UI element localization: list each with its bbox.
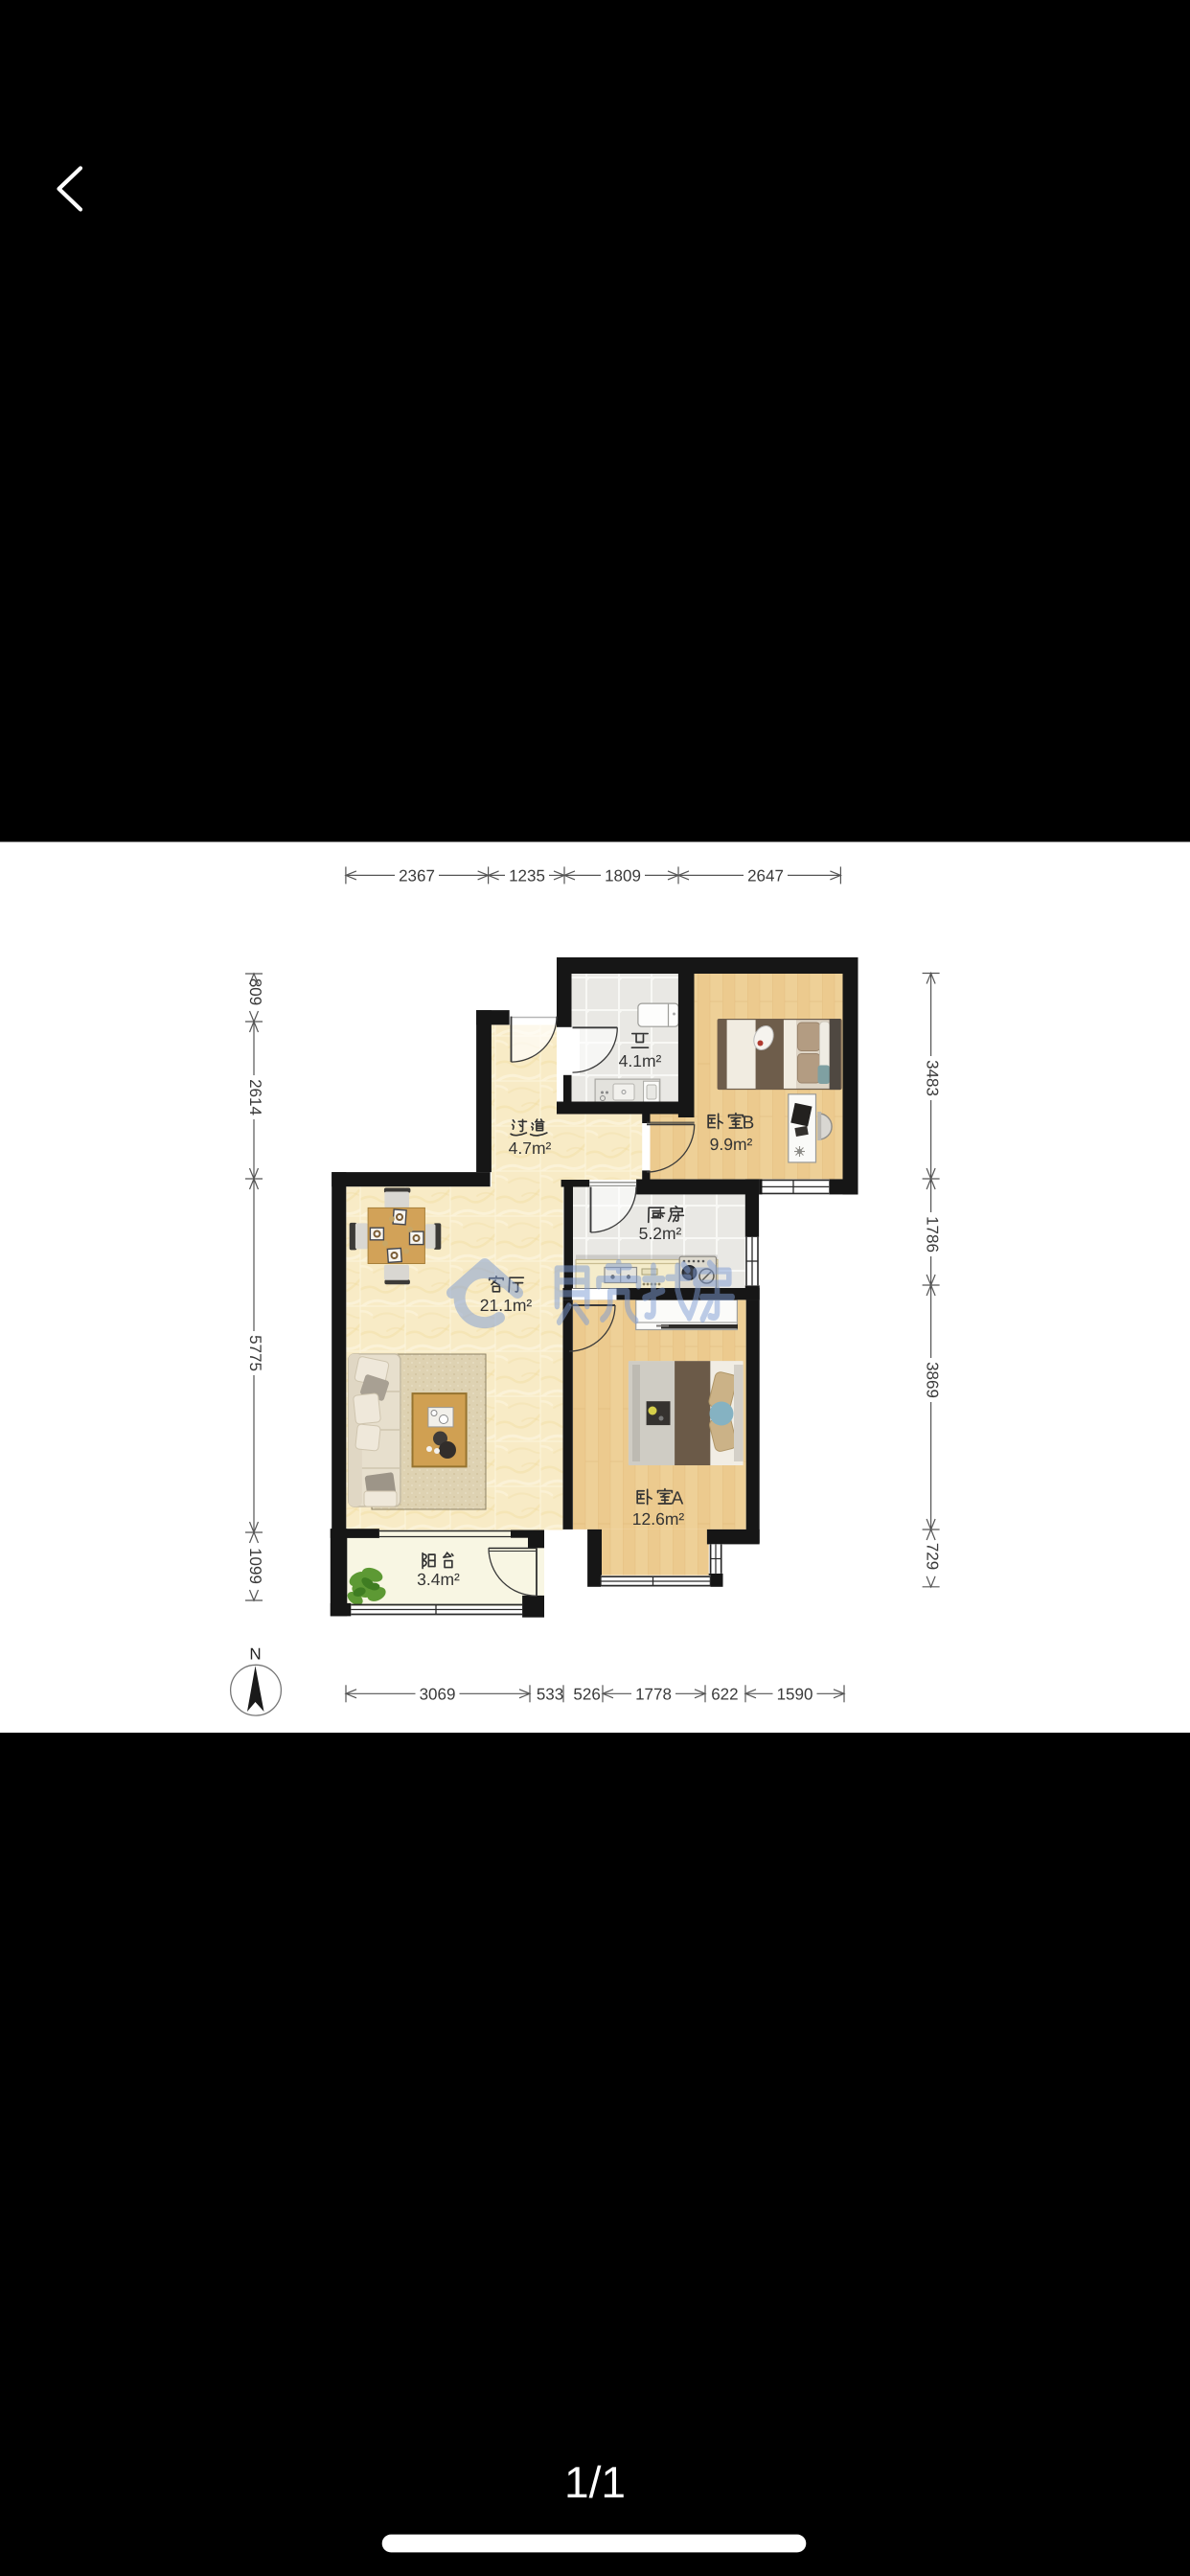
svg-text:622: 622 (711, 1685, 738, 1703)
svg-text:3069: 3069 (420, 1685, 456, 1703)
svg-text:1/1: 1/1 (564, 2457, 626, 2507)
svg-text:3869: 3869 (924, 1362, 942, 1398)
svg-text:4.7m²: 4.7m² (509, 1138, 552, 1158)
svg-text:4.1m²: 4.1m² (619, 1051, 662, 1070)
svg-text:1809: 1809 (605, 866, 641, 885)
svg-text:1099: 1099 (246, 1548, 264, 1584)
svg-text:3.4m²: 3.4m² (417, 1570, 460, 1589)
svg-text:5775: 5775 (246, 1335, 264, 1371)
svg-text:1778: 1778 (635, 1685, 672, 1703)
svg-text:2614: 2614 (246, 1079, 264, 1115)
svg-text:12.6m²: 12.6m² (632, 1509, 685, 1529)
svg-text:1786: 1786 (924, 1216, 942, 1253)
svg-text:B: B (743, 1114, 755, 1134)
svg-text:729: 729 (924, 1543, 942, 1570)
svg-text:2367: 2367 (399, 866, 435, 885)
svg-text:N: N (249, 1645, 261, 1664)
svg-text:1235: 1235 (509, 866, 545, 885)
svg-text:A: A (672, 1489, 684, 1509)
svg-text:21.1m²: 21.1m² (480, 1296, 533, 1315)
svg-text:809: 809 (246, 978, 264, 1005)
svg-text:3483: 3483 (924, 1060, 942, 1096)
svg-text:526: 526 (573, 1685, 600, 1703)
svg-text:533: 533 (537, 1685, 563, 1703)
svg-text:2647: 2647 (747, 866, 784, 885)
svg-text:5.2m²: 5.2m² (639, 1224, 682, 1243)
svg-text:1590: 1590 (777, 1685, 813, 1703)
svg-text:9.9m²: 9.9m² (710, 1135, 753, 1154)
